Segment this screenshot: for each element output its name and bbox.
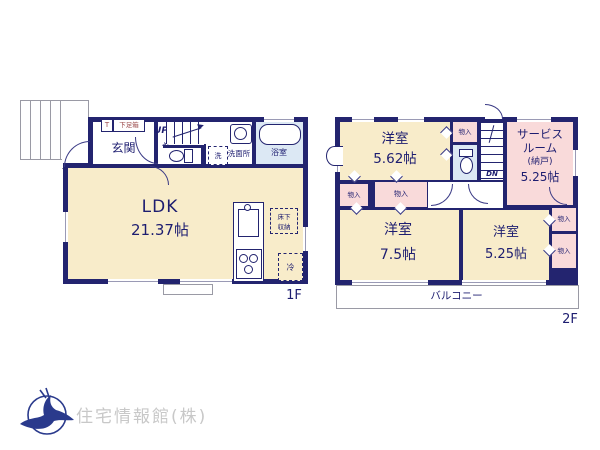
underfloor-label-1: 床下 [278,211,291,221]
underfloor-storage: 床下 収納 [270,208,298,234]
service-size-label: 5.25帖 [507,169,573,184]
bedroom3-size-label: 5.25帖 [471,246,541,262]
fridge-label: 冷 [287,262,295,273]
service-label-1: サービス [507,128,573,142]
closet-2f-top-label: 物入 [453,122,477,142]
window-2f-top-c [517,117,551,122]
underfloor-label-2: 収納 [278,221,291,231]
window-2f-right [573,150,578,176]
dn-label: DN [482,169,502,179]
floor2-label: 2F [556,311,584,327]
sink-icon-basin [234,127,247,140]
fridge-space: 冷 [278,253,303,281]
bathtub-icon [259,124,301,145]
washroom-label: 洗面所 [224,148,254,160]
window-1f-top-bath [264,117,294,122]
bedroom1-size-label: 5.62帖 [360,152,430,168]
toilet-icon-2f-bowl [460,157,473,174]
toilet-icon-1f-tank [184,149,193,163]
floorplan-canvas: 玄関 T 下足箱 UP ホール 洗 洗面所 浴室 LDK 21.37帖 床下 収… [0,0,600,450]
ldk-size-label: 21.37帖 [110,221,210,239]
balcony-label: バルコニー [336,288,577,304]
exterior-stairs [20,100,64,160]
window-1f-bottom-a [108,279,158,284]
bedroom1-label: 洋室 [365,131,425,148]
window-1f-left [63,212,68,242]
bedroom2-size-label: 7.5帖 [363,246,433,263]
terrace-step [163,284,213,295]
shoebox-badge: 下足箱 [113,119,145,132]
washer-label: 洗 [215,151,222,161]
shoebox-t-badge: T [101,119,113,132]
service-label-2: ルーム [507,142,573,156]
window-2f-top-a [352,117,374,122]
window-1f-right [303,227,308,251]
window-2f-left-bay [326,146,343,166]
stove-burner-2 [249,254,258,263]
shoebox-label: 下足箱 [119,122,139,129]
shoebox-t-label: T [105,122,109,129]
service-label-3: (納戸) [507,156,573,168]
stove-icon [236,249,262,279]
stove-burner-1 [239,254,248,263]
company-name: 住宅情報館(株) [76,404,246,430]
closet-2f-right-b-label: 物入 [552,234,576,268]
window-2f-top-b [398,117,424,122]
bedroom2-label: 洋室 [368,221,428,239]
kitchen-sink [238,209,259,237]
toilet-icon-1f-bowl [169,150,184,162]
door-arc-stairwell-top [485,104,503,119]
ldk-label: LDK [120,197,200,217]
room-bedroom3 [463,210,549,280]
bath-label: 浴室 [258,147,300,159]
bedroom3-label: 洋室 [476,224,536,241]
company-logo-icon [16,386,76,442]
floor1-label: 1F [280,287,308,303]
kitchen-faucet [244,204,251,211]
stove-burner-3 [244,265,253,274]
toilet-icon-2f-tank [459,149,473,157]
